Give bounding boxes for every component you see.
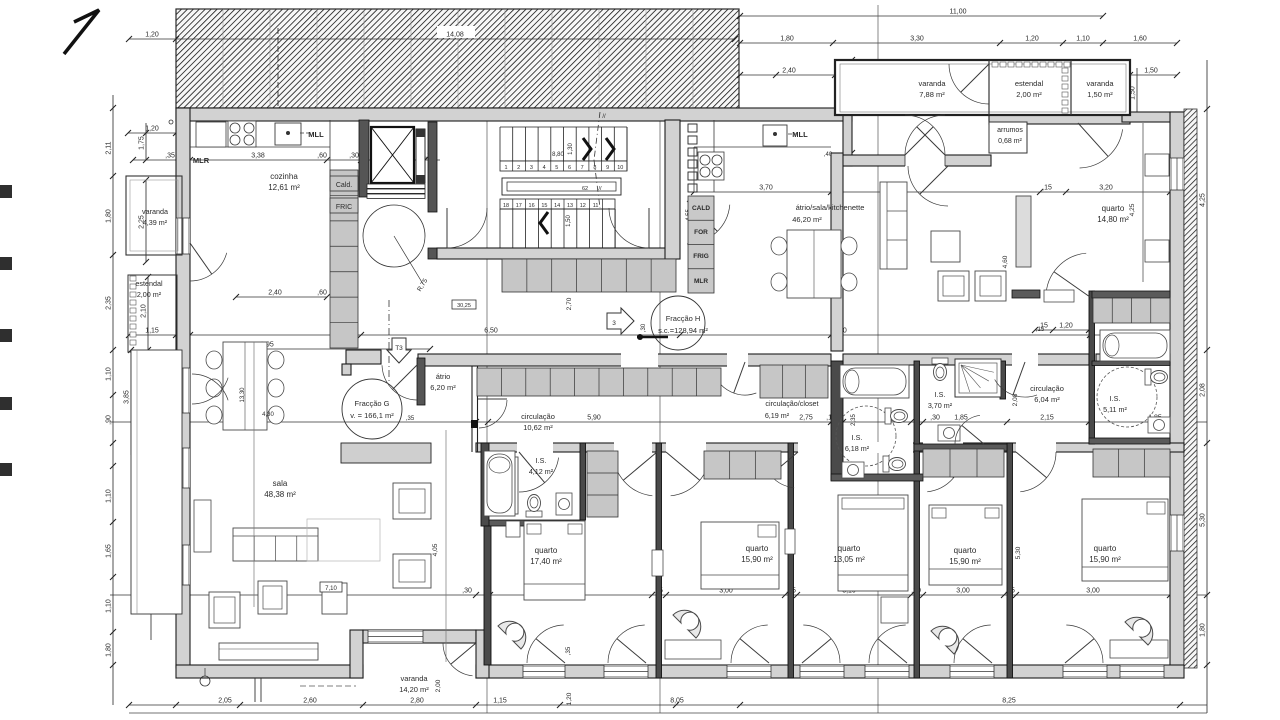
svg-text:6,20 m²: 6,20 m² (430, 383, 456, 392)
svg-text:7: 7 (581, 165, 584, 171)
svg-text:FRIC: FRIC (336, 204, 352, 211)
svg-text:circulação: circulação (1030, 384, 1064, 393)
svg-text:2,15: 2,15 (1040, 415, 1054, 422)
svg-text:46,20 m²: 46,20 m² (792, 215, 822, 224)
svg-text:CALD: CALD (692, 205, 710, 212)
svg-text:T3: T3 (395, 345, 403, 352)
svg-text:2,00 m²: 2,00 m² (137, 290, 162, 299)
svg-text:1,60: 1,60 (1133, 36, 1147, 43)
svg-text:átrio: átrio (436, 372, 451, 381)
svg-text:circulação: circulação (521, 412, 555, 421)
svg-text://: // (602, 114, 606, 120)
svg-text:2,70: 2,70 (566, 297, 573, 310)
svg-text:1,20: 1,20 (145, 32, 159, 39)
svg-text:,35: ,35 (406, 416, 415, 422)
svg-text:15,90 m²: 15,90 m² (1089, 555, 1121, 564)
svg-text:2,40: 2,40 (782, 68, 796, 75)
svg-text://: // (598, 186, 602, 192)
svg-text:16: 16 (529, 203, 535, 209)
svg-text:18: 18 (503, 203, 509, 209)
svg-text:4,05: 4,05 (432, 543, 439, 556)
svg-text:varanda: varanda (142, 207, 168, 216)
svg-text:I.S.: I.S. (1110, 394, 1121, 403)
svg-text:,15: ,15 (1036, 327, 1045, 333)
svg-text:1,15: 1,15 (493, 698, 507, 705)
svg-text:1,10: 1,10 (106, 599, 113, 613)
svg-text:6,04 m²: 6,04 m² (1034, 395, 1060, 404)
svg-text:quarto: quarto (746, 544, 769, 553)
svg-text:varanda: varanda (918, 79, 946, 88)
svg-text:2,08: 2,08 (1200, 383, 1207, 397)
svg-text:4: 4 (543, 165, 546, 171)
svg-text:,15: ,15 (1042, 185, 1052, 192)
svg-text:4,12 m²: 4,12 m² (529, 467, 554, 476)
svg-text:2,75: 2,75 (799, 415, 813, 422)
svg-text:4,39 m²: 4,39 m² (143, 218, 168, 227)
svg-text:2,35: 2,35 (106, 296, 113, 310)
svg-text:2,40: 2,40 (268, 290, 282, 297)
svg-text:13,05 m²: 13,05 m² (833, 555, 865, 564)
svg-text:17,40 m²: 17,40 m² (530, 557, 562, 566)
svg-text:,30: ,30 (641, 323, 647, 332)
svg-text:14,08: 14,08 (446, 32, 464, 39)
svg-text:1,10: 1,10 (106, 367, 113, 381)
svg-text:2,10: 2,10 (141, 304, 148, 318)
svg-text:3,00: 3,00 (956, 588, 970, 595)
svg-text:I.S.: I.S. (935, 390, 946, 399)
svg-text:4,30: 4,30 (262, 412, 274, 418)
svg-text:11,00: 11,00 (950, 9, 967, 16)
svg-text:MLR: MLR (694, 278, 708, 285)
svg-text:1,30: 1,30 (568, 143, 574, 155)
svg-text:1,50: 1,50 (1144, 68, 1158, 75)
svg-text:4,25: 4,25 (1200, 193, 1207, 207)
svg-text:estendal: estendal (135, 279, 163, 288)
svg-text:62: 62 (582, 186, 588, 192)
svg-text:,90: ,90 (106, 415, 113, 425)
svg-text:FRIG: FRIG (693, 253, 709, 260)
svg-text:v. = 166,1 m²: v. = 166,1 m² (350, 411, 394, 420)
svg-text:13,30: 13,30 (240, 387, 246, 403)
svg-text:1,20: 1,20 (1059, 323, 1073, 330)
svg-text:3,00: 3,00 (1086, 588, 1100, 595)
svg-text:1,15: 1,15 (145, 328, 159, 335)
svg-text:,35: ,35 (165, 153, 175, 160)
svg-text:6,50: 6,50 (484, 328, 498, 335)
svg-text:estendal: estendal (1015, 79, 1044, 88)
svg-text:3,85: 3,85 (124, 390, 131, 404)
svg-text:cozinha: cozinha (270, 172, 298, 181)
svg-text:1,50 m²: 1,50 m² (1087, 90, 1113, 99)
svg-text:48,38 m²: 48,38 m² (264, 490, 296, 499)
svg-text:5: 5 (555, 165, 558, 171)
svg-text:2,60: 2,60 (303, 698, 317, 705)
svg-text:15,90 m²: 15,90 m² (949, 557, 981, 566)
svg-text:,30: ,30 (349, 153, 359, 160)
svg-text:6,18 m²: 6,18 m² (845, 444, 870, 453)
svg-text:3,38: 3,38 (251, 153, 265, 160)
svg-text:1,85: 1,85 (954, 415, 968, 422)
svg-text:MLL: MLL (308, 130, 324, 139)
svg-text:2,00: 2,00 (435, 679, 442, 692)
svg-text:12,61 m²: 12,61 m² (268, 183, 300, 192)
svg-text:6,19 m²: 6,19 m² (765, 411, 790, 420)
svg-text:10: 10 (617, 165, 623, 171)
svg-text:quarto: quarto (954, 546, 977, 555)
svg-text:2,05: 2,05 (218, 698, 232, 705)
svg-text:0,68 m²: 0,68 m² (998, 138, 1022, 145)
svg-text:2,00 m²: 2,00 m² (1016, 90, 1042, 99)
svg-text:4,25: 4,25 (1129, 203, 1136, 216)
svg-text:Fracção G: Fracção G (354, 399, 389, 408)
svg-text:5,90: 5,90 (587, 415, 601, 422)
svg-text:2,80: 2,80 (410, 698, 424, 705)
svg-text:,30: ,30 (462, 588, 472, 595)
svg-text:8,05: 8,05 (670, 698, 684, 705)
svg-text:quarto: quarto (1102, 204, 1125, 213)
svg-text:9: 9 (606, 165, 609, 171)
svg-text:13: 13 (567, 203, 573, 209)
svg-text:2,11: 2,11 (106, 141, 113, 154)
svg-text:Fracção H: Fracção H (666, 314, 701, 323)
svg-text:,30: ,30 (930, 415, 940, 422)
svg-text:sala: sala (273, 479, 288, 488)
svg-text:15,90 m²: 15,90 m² (741, 555, 773, 564)
svg-text:3,70: 3,70 (759, 185, 773, 192)
svg-text:circulação/closet: circulação/closet (765, 399, 818, 408)
svg-text:17: 17 (516, 203, 522, 209)
svg-text:7,88 m²: 7,88 m² (919, 90, 945, 99)
svg-text:1,20: 1,20 (1025, 36, 1039, 43)
svg-text:30,25: 30,25 (457, 303, 471, 309)
svg-text:14,20 m²: 14,20 m² (399, 685, 429, 694)
svg-text:7,10: 7,10 (325, 586, 337, 592)
svg-text:3,70 m²: 3,70 m² (928, 401, 953, 410)
svg-text:15: 15 (541, 203, 547, 209)
svg-text:14: 14 (554, 203, 560, 209)
svg-text:,60: ,60 (317, 290, 327, 297)
svg-text:MLR: MLR (193, 156, 210, 165)
svg-text:quarto: quarto (535, 546, 558, 555)
svg-text:1,20: 1,20 (145, 126, 159, 133)
svg-text:quarto: quarto (838, 544, 861, 553)
svg-text:5,11 m²: 5,11 m² (1103, 405, 1127, 414)
svg-text:1,75: 1,75 (139, 136, 146, 150)
svg-text:,60: ,60 (317, 153, 327, 160)
svg-text:10,62 m²: 10,62 m² (523, 423, 553, 432)
svg-text:1,80: 1,80 (780, 36, 794, 43)
svg-text:1,10: 1,10 (106, 489, 113, 503)
svg-text:8,25: 8,25 (1002, 698, 1016, 705)
svg-text:I.S.: I.S. (536, 456, 547, 465)
svg-text:3,30: 3,30 (910, 36, 924, 43)
svg-text:1,80: 1,80 (1200, 623, 1207, 637)
svg-text:1,65: 1,65 (106, 544, 113, 558)
svg-text:3,20: 3,20 (1099, 185, 1113, 192)
svg-text:14,80 m²: 14,80 m² (1097, 215, 1129, 224)
svg-text:1: 1 (504, 165, 507, 171)
svg-text:átrio/sala/kitchenette: átrio/sala/kitchenette (796, 203, 865, 212)
svg-text:2,35: 2,35 (851, 414, 857, 426)
svg-text:arrumos: arrumos (997, 127, 1023, 134)
svg-text:1,10: 1,10 (1076, 36, 1090, 43)
svg-text:MLL: MLL (792, 130, 808, 139)
svg-text:Cald.: Cald. (336, 182, 352, 189)
svg-text:11: 11 (593, 203, 599, 209)
svg-text:12: 12 (580, 203, 586, 209)
svg-text:3: 3 (612, 320, 616, 327)
svg-text:s.c.=128,94 m²: s.c.=128,94 m² (658, 326, 708, 335)
svg-text:1,80: 1,80 (106, 209, 113, 223)
svg-text:5,30: 5,30 (1200, 513, 1207, 527)
svg-text:2: 2 (517, 165, 520, 171)
svg-text:3: 3 (530, 165, 533, 171)
svg-text:1,50: 1,50 (566, 215, 572, 227)
svg-text:I.S.: I.S. (852, 433, 863, 442)
svg-text:varanda: varanda (1086, 79, 1114, 88)
svg-text:4,60: 4,60 (1002, 255, 1009, 268)
svg-text:FOR: FOR (694, 229, 708, 236)
svg-text:5,30: 5,30 (1015, 546, 1022, 559)
svg-text:quarto: quarto (1094, 544, 1117, 553)
svg-text:6: 6 (568, 165, 571, 171)
svg-text:8,80: 8,80 (552, 152, 564, 158)
svg-text:varanda: varanda (400, 674, 428, 683)
svg-text:1,80: 1,80 (106, 643, 113, 657)
svg-text:1,20: 1,20 (566, 692, 573, 705)
svg-text:,35: ,35 (566, 646, 572, 655)
